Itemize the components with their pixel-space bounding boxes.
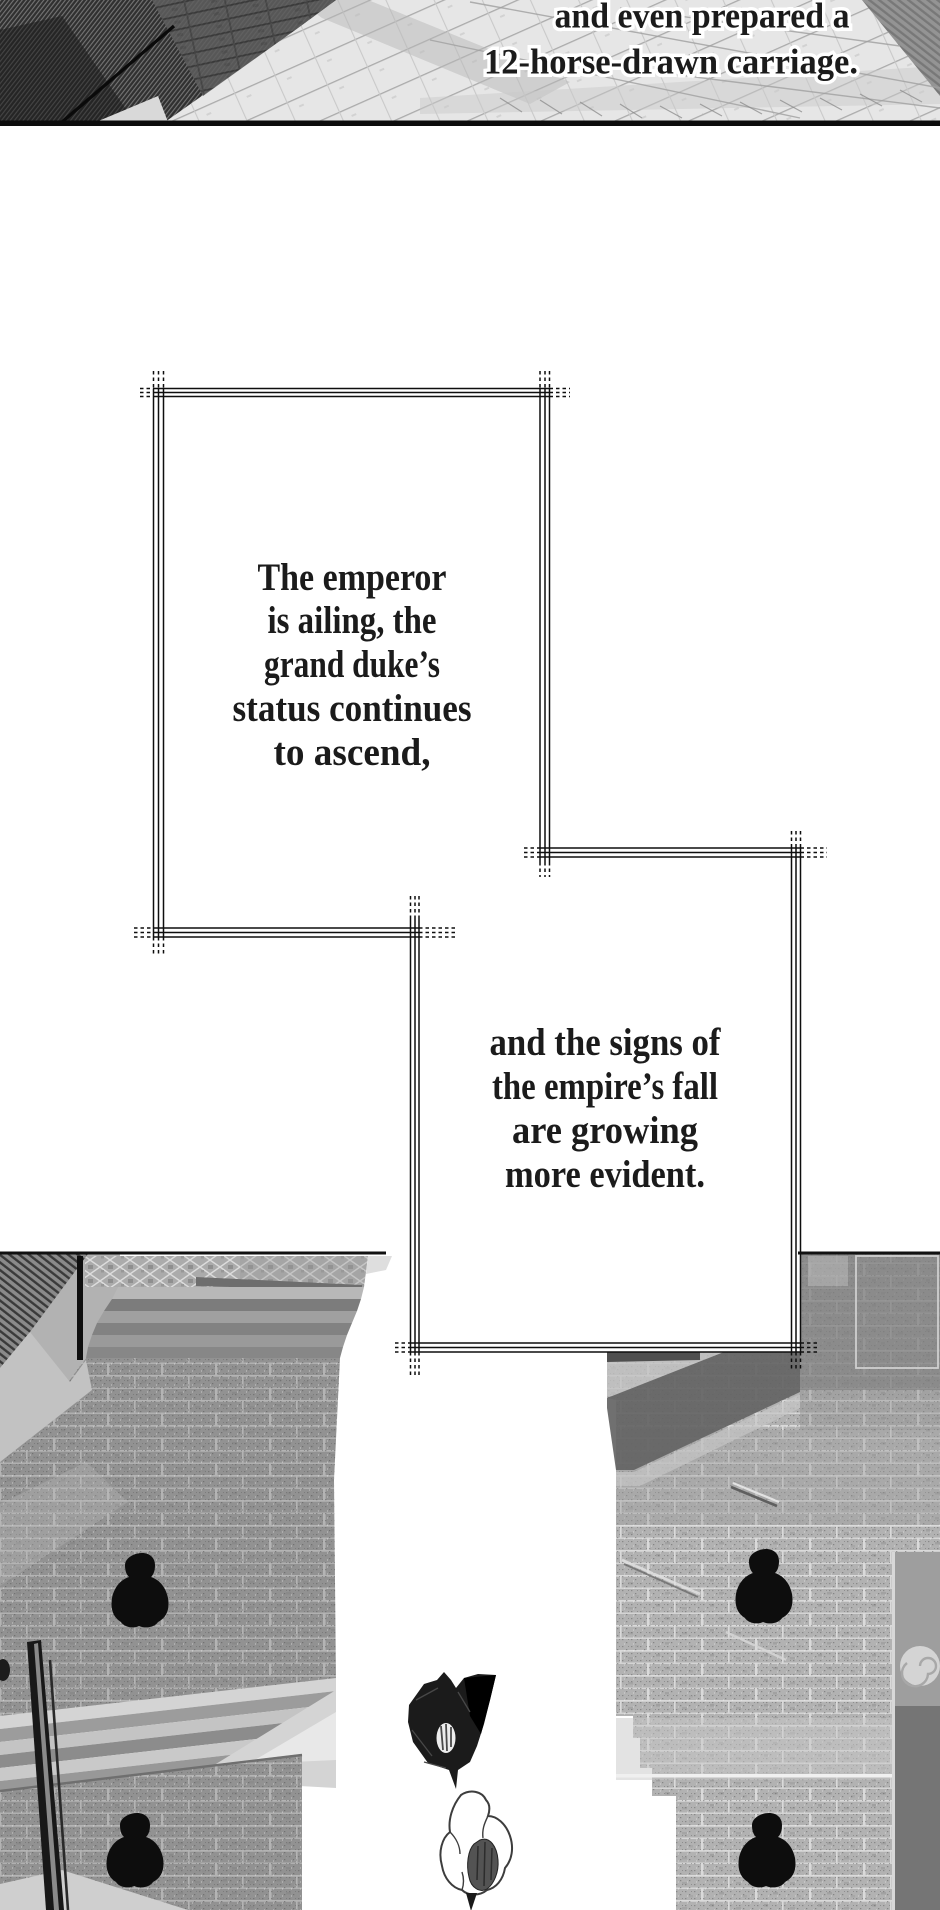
svg-text:and the signs of: and the signs of bbox=[490, 1021, 722, 1064]
svg-text:and even prepared a: and even prepared a bbox=[555, 0, 850, 36]
svg-text:12-horse-drawn carriage.: 12-horse-drawn carriage. bbox=[484, 42, 858, 82]
svg-text:are growing: are growing bbox=[512, 1109, 698, 1152]
svg-text:is ailing, the: is ailing, the bbox=[268, 599, 437, 642]
svg-text:status continues: status continues bbox=[233, 687, 472, 730]
svg-text:the empire’s fall: the empire’s fall bbox=[492, 1065, 718, 1108]
svg-text:to ascend,: to ascend, bbox=[274, 731, 431, 774]
svg-text:more evident.: more evident. bbox=[505, 1153, 705, 1196]
svg-text:grand duke’s: grand duke’s bbox=[264, 643, 440, 686]
svg-text:The emperor: The emperor bbox=[258, 556, 447, 599]
